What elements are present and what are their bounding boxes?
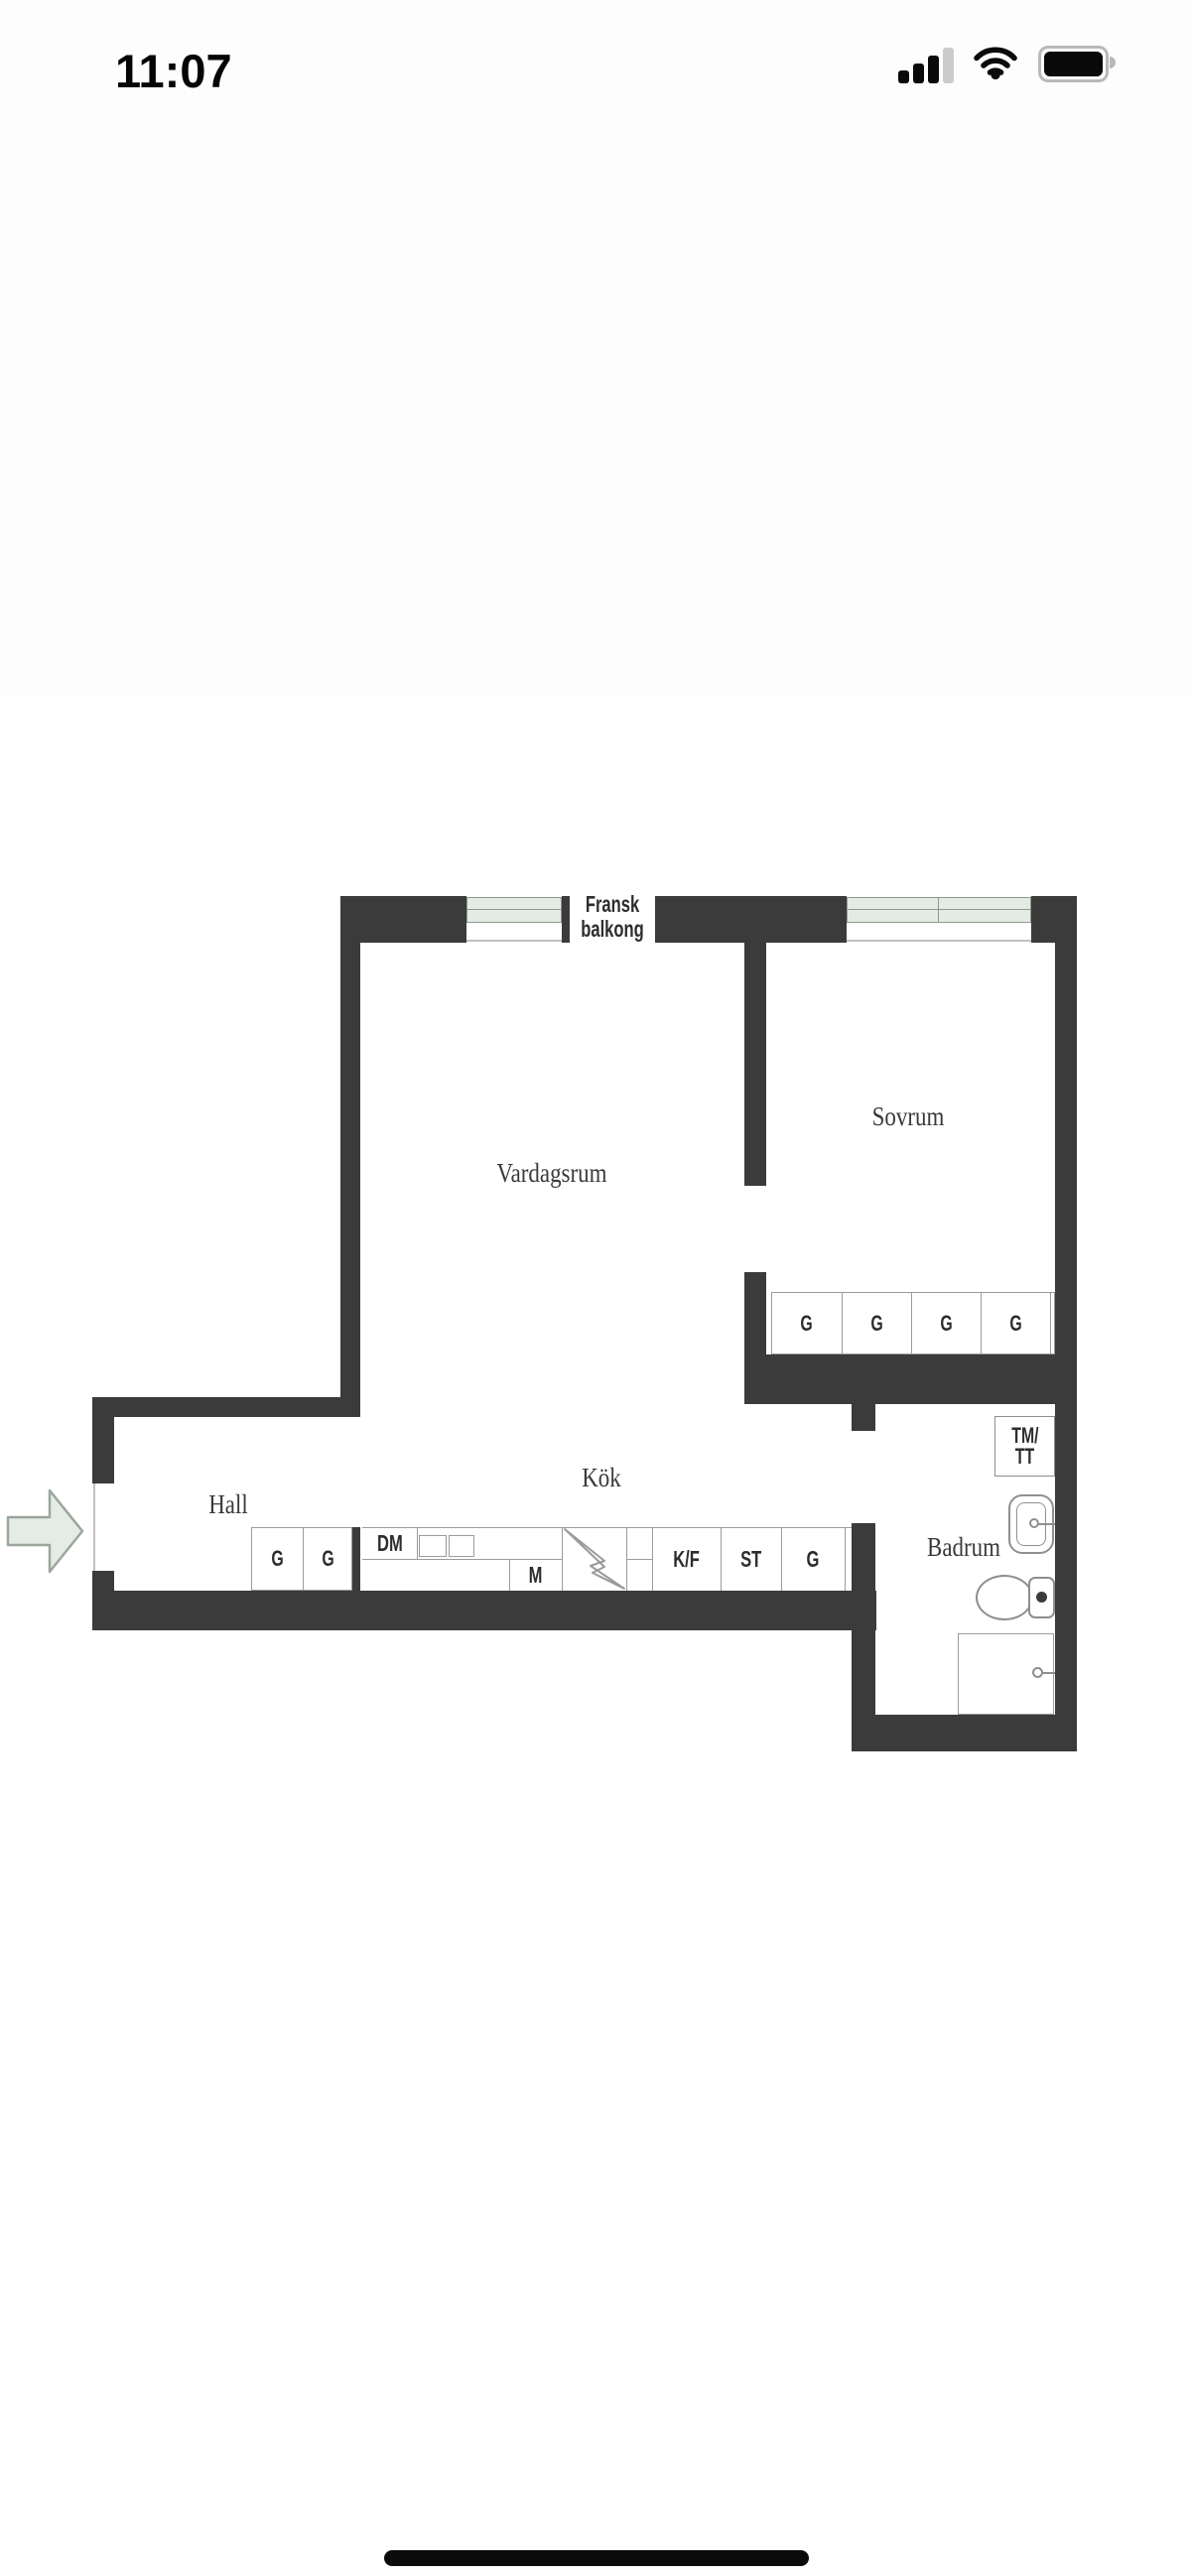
counter-divider <box>417 1527 418 1559</box>
room-label-hall: Hall <box>208 1489 248 1520</box>
wall <box>352 1527 360 1591</box>
hall-wardrobe-row: G G <box>251 1527 352 1591</box>
stove-icon <box>562 1527 626 1591</box>
wall <box>744 943 766 1186</box>
kitchen-sink-basin <box>419 1535 447 1557</box>
wifi-icon <box>973 44 1018 79</box>
shower-valve-stem <box>1041 1672 1055 1674</box>
window-mullion <box>466 909 562 910</box>
wardrobe-cell <box>1050 1293 1056 1353</box>
wall <box>340 896 466 943</box>
counter-divider <box>845 1527 846 1591</box>
toilet-bowl <box>976 1575 1033 1620</box>
window-sill-line <box>466 940 562 942</box>
toilet-flush-button <box>1036 1592 1047 1603</box>
wardrobe-cell: G <box>303 1528 353 1590</box>
kitchen-sink-basin <box>449 1535 474 1557</box>
entry-arrow-icon <box>6 1485 85 1577</box>
kitchen-unit-tall-cabinet: ST <box>721 1527 781 1591</box>
balcony-label: Fransk balkong <box>559 892 666 943</box>
kitchen-unit-oven: M <box>509 1560 562 1591</box>
sink-faucet <box>1038 1523 1055 1525</box>
wall <box>1031 896 1077 943</box>
laundry-unit: TM/ TT <box>994 1416 1055 1477</box>
background-tint <box>0 0 1191 698</box>
kitchen-unit-fridge-freezer: K/F <box>652 1527 721 1591</box>
wardrobe-cell: G <box>911 1293 981 1353</box>
wall <box>94 1397 360 1417</box>
room-label-bathroom: Badrum <box>927 1532 1000 1563</box>
wall <box>92 1397 114 1483</box>
bedroom-window <box>847 897 1031 923</box>
wall <box>744 1272 766 1354</box>
entry-threshold-line <box>93 1483 95 1571</box>
wall <box>655 896 847 943</box>
room-label-living: Vardagsrum <box>497 1158 607 1189</box>
kitchen-unit-dishwasher: DM <box>362 1528 417 1559</box>
wardrobe-cell: G <box>252 1528 303 1590</box>
room-label-bedroom: Sovrum <box>872 1101 945 1132</box>
cellular-signal-icon <box>898 47 958 83</box>
kitchen-unit-cabinet: G <box>781 1527 845 1591</box>
clock-time: 11:07 <box>115 44 232 98</box>
wardrobe-cell: G <box>981 1293 1050 1353</box>
counter-divider <box>626 1559 652 1560</box>
window-sill-line <box>847 940 1031 942</box>
wall <box>852 1715 1077 1751</box>
wall <box>340 943 360 1417</box>
wall <box>92 1591 876 1630</box>
sink-faucet-knob <box>1029 1518 1039 1528</box>
wall <box>744 1354 1055 1404</box>
wardrobe-cell: G <box>842 1293 911 1353</box>
bedroom-wardrobe-row: G G G G <box>771 1292 1055 1354</box>
home-indicator[interactable] <box>384 2550 809 2566</box>
wardrobe-cell: G <box>772 1293 842 1353</box>
iphone-screenshot: 11:07 <box>0 0 1191 2576</box>
wall <box>852 1404 875 1431</box>
room-label-kitchen: Kök <box>582 1463 621 1493</box>
living-room-window <box>466 897 562 923</box>
window-mullion <box>847 909 1031 910</box>
window-mullion <box>938 897 939 923</box>
shower-valve <box>1032 1667 1043 1678</box>
wall <box>1055 943 1077 1751</box>
